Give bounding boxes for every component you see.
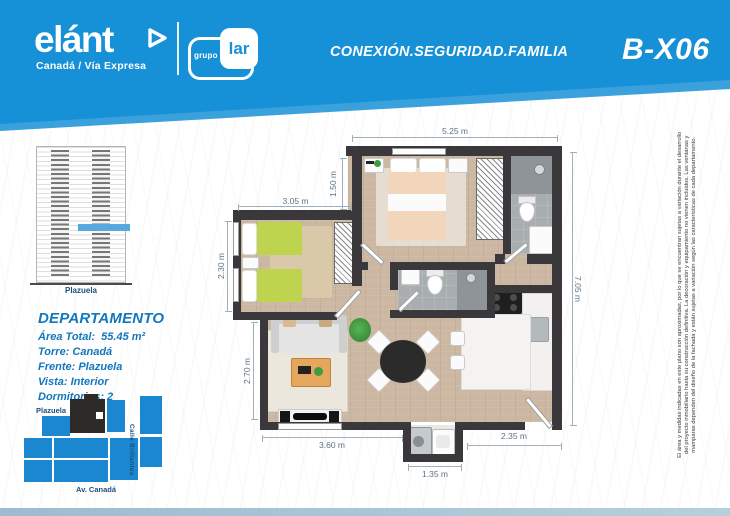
shower-head-icon bbox=[466, 273, 476, 283]
window-bedroom2 bbox=[233, 222, 239, 256]
window-living bbox=[278, 423, 342, 430]
site-label-av-canada: Av. Canadá bbox=[76, 485, 116, 494]
site-label-calle-brillantes: Calle Brillantes bbox=[128, 424, 135, 476]
burner bbox=[510, 294, 517, 301]
disclaimer-line: del proyecto inmobiliario hasta su const… bbox=[684, 128, 691, 462]
logo-divider bbox=[177, 22, 179, 75]
dimension-line bbox=[262, 437, 403, 438]
sofa bbox=[271, 315, 347, 353]
wall-bedroom2-top bbox=[233, 210, 362, 220]
pillow bbox=[419, 158, 446, 173]
pillow bbox=[390, 158, 417, 173]
pillow bbox=[242, 270, 257, 302]
disclaimer-line: El área y medidas indicadas en este plan… bbox=[677, 128, 684, 462]
dimension-label-bedroom2-depth: 2.30 m bbox=[216, 244, 226, 288]
dimension-label-living-width: 3.60 m bbox=[302, 440, 362, 450]
shower-bathroom1 bbox=[511, 156, 552, 194]
window-bedroom2 bbox=[233, 268, 239, 302]
apartment-front: Frente: Plazuela bbox=[38, 361, 122, 373]
site-block bbox=[42, 416, 70, 436]
sofa-arm bbox=[271, 315, 279, 353]
laundry-sink bbox=[432, 429, 455, 455]
site-street-line bbox=[52, 438, 54, 482]
dimension-label-right-height: 7.05 m bbox=[573, 267, 583, 311]
coffee-table bbox=[291, 358, 331, 387]
dimension-label-laundry-width: 1.35 m bbox=[405, 469, 465, 479]
bed-master bbox=[388, 156, 446, 240]
sofa-arm bbox=[339, 315, 347, 353]
bed-twin-1 bbox=[242, 222, 302, 255]
site-block bbox=[140, 437, 162, 467]
burner bbox=[510, 304, 517, 311]
dining-table bbox=[380, 340, 426, 383]
decor-item bbox=[366, 161, 374, 164]
legal-disclaimer: El área y medidas indicadas en este plan… bbox=[677, 128, 699, 462]
stool bbox=[450, 331, 465, 346]
slogan-text: CONEXIÓN.SEGURIDAD.FAMILIA bbox=[330, 44, 568, 60]
wall-bathroom2-left bbox=[390, 262, 398, 290]
dimension-label-top: 5.25 m bbox=[430, 126, 480, 136]
building-elevation bbox=[36, 146, 126, 283]
dimension-line bbox=[238, 206, 352, 207]
closet-bedroom2 bbox=[334, 222, 354, 284]
washer-door bbox=[413, 436, 424, 447]
apartment-area: Área Total: 55.45 m² bbox=[38, 331, 145, 343]
wall-laundry-bottom bbox=[403, 454, 463, 462]
bed-throw bbox=[388, 194, 446, 211]
tray-decor bbox=[298, 366, 311, 374]
site-block bbox=[140, 396, 162, 434]
site-building-highlight bbox=[84, 394, 98, 404]
duvet-green bbox=[257, 222, 302, 255]
unit-code: B-X06 bbox=[622, 33, 710, 67]
wall-living-left bbox=[260, 312, 268, 430]
dimension-label-terrace-width: 2.35 m bbox=[484, 431, 544, 441]
wall-bathroom2-top bbox=[390, 262, 495, 270]
nightstand bbox=[448, 158, 468, 173]
wall-kitchen-top bbox=[487, 285, 552, 293]
apartment-view: Vista: Interior bbox=[38, 376, 109, 388]
pillow bbox=[242, 223, 257, 255]
site-block bbox=[107, 400, 125, 432]
kitchen-island bbox=[461, 314, 531, 390]
apartment-tower: Torre: Canadá bbox=[38, 346, 112, 358]
dimension-line bbox=[342, 158, 343, 210]
site-block bbox=[24, 438, 108, 482]
footer-bar bbox=[0, 508, 730, 516]
wall-hall bbox=[352, 262, 368, 270]
wall-bathroom2-bottom bbox=[390, 310, 495, 318]
lar-logo-box: lar bbox=[220, 28, 258, 69]
elevation-caption: Plazuela bbox=[36, 286, 126, 295]
stool bbox=[450, 355, 465, 370]
dimension-line bbox=[408, 466, 462, 467]
window-master bbox=[392, 148, 446, 155]
disclaimer-line: mamparas dependen del diseño de la facha… bbox=[692, 128, 699, 462]
nightstand bbox=[242, 257, 259, 269]
dimension-label-bedroom2-width: 3.05 m bbox=[268, 196, 323, 206]
bed-twin-2 bbox=[242, 269, 302, 302]
sofa-seat bbox=[279, 324, 339, 353]
closet-master bbox=[476, 158, 506, 240]
site-building-notch bbox=[96, 412, 103, 419]
plant-decor bbox=[374, 160, 381, 167]
elevation-column-strip bbox=[51, 150, 69, 277]
flyer-canvas: elánt Canadá / Vía Expresa grupo lar CON… bbox=[0, 0, 730, 516]
dimension-label-master-depth: 1.50 m bbox=[328, 162, 338, 206]
tv-screen bbox=[293, 413, 327, 420]
apartment-title: DEPARTAMENTO bbox=[38, 310, 164, 327]
wall-right bbox=[552, 146, 562, 430]
wall-top bbox=[346, 146, 562, 156]
wall-bottom-right bbox=[455, 422, 525, 430]
dimension-line bbox=[253, 322, 254, 420]
site-street-line bbox=[24, 458, 108, 460]
vanity-bathroom1 bbox=[529, 226, 554, 254]
brand-tagline: Canadá / Vía Expresa bbox=[36, 60, 146, 72]
sink-bathroom2 bbox=[401, 268, 420, 285]
duvet-green bbox=[257, 269, 302, 302]
dimension-line bbox=[467, 445, 562, 446]
dimension-line bbox=[227, 221, 228, 312]
elevation-baseline bbox=[30, 283, 132, 285]
wall-bedroom2-bottom bbox=[233, 312, 337, 320]
shower-head-icon bbox=[534, 164, 545, 175]
plant-living bbox=[349, 318, 371, 342]
site-label-plazuela: Plazuela bbox=[36, 406, 66, 415]
grupo-label: grupo bbox=[194, 51, 218, 60]
brand-logo-text: elánt bbox=[34, 22, 113, 58]
play-triangle-icon bbox=[146, 27, 168, 54]
wall-bathroom1-left bbox=[503, 156, 511, 254]
elevation-column-strip bbox=[92, 150, 110, 277]
wall-bathroom1-bottom bbox=[527, 254, 552, 264]
dimension-label-living-depth: 2.70 m bbox=[242, 349, 252, 393]
floor-highlight-band bbox=[78, 224, 130, 231]
plant-decor bbox=[314, 367, 323, 376]
sink-basin bbox=[436, 435, 450, 448]
dimension-line bbox=[352, 137, 558, 138]
